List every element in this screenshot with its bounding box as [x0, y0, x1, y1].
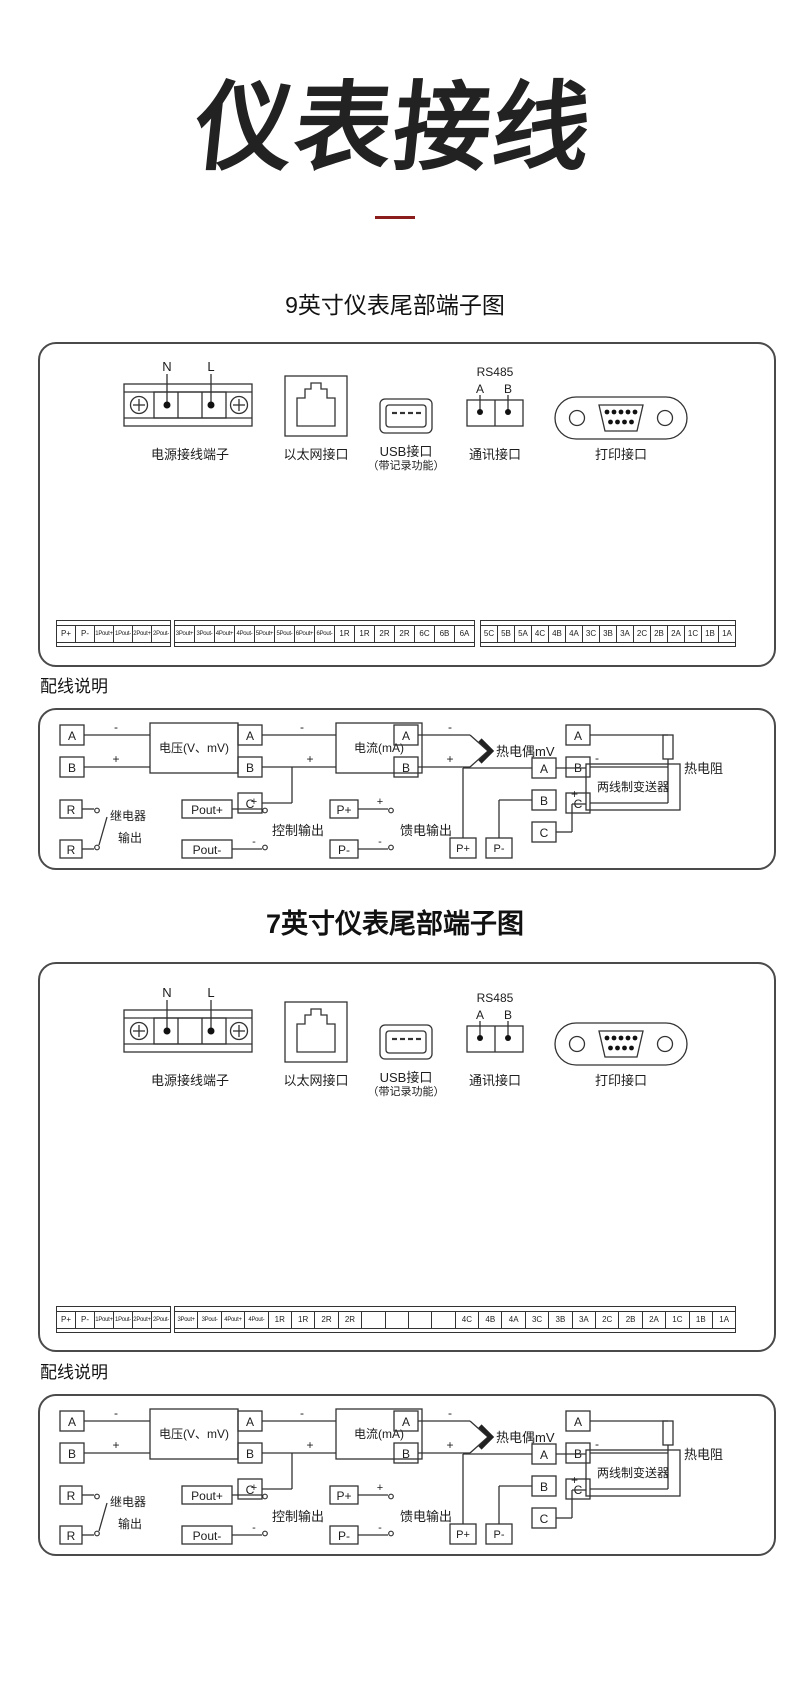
terminal-strip-group: 3Pout+3Pout-4Pout+4Pout-5Pout+5Pout-6Pou… [174, 620, 475, 647]
terminal-a: A [540, 762, 548, 776]
wiring-heading: 配线说明 [40, 672, 108, 697]
wiring-relay-diagram: R R 继电器 输出 [58, 796, 178, 866]
terminal-a: A [402, 729, 410, 743]
pin-l-label: L [207, 986, 214, 1000]
pos-sign: + [251, 796, 257, 808]
terminal-cell: 6B [434, 626, 454, 642]
terminal-cell: 2Pout- [151, 626, 170, 642]
terminal-cell: 2C [595, 1312, 618, 1328]
terminal-cell: 1Pout- [113, 626, 132, 642]
terminal-cell: 1R [291, 1312, 314, 1328]
pin-l-label: L [207, 360, 214, 374]
terminal-cell [385, 1312, 408, 1328]
terminal-cell: 2Pout+ [132, 626, 151, 642]
wiring-transmitter-diagram: A B C P+ P- 两线制变送器 - + [440, 752, 685, 864]
terminal-p-minus: P- [494, 843, 505, 855]
terminal-cell [361, 1312, 384, 1328]
terminal-r2: R [67, 1529, 76, 1543]
neg-sign: - [378, 1522, 382, 1534]
terminal-cell: 2B [618, 1312, 641, 1328]
section-heading-7inch: 7英寸仪表尾部端子图 [0, 902, 790, 941]
terminal-cell: 2R [374, 626, 394, 642]
voltage-label: 电压(V、mV) [159, 1427, 229, 1441]
terminal-cell: 1Pout- [113, 1312, 132, 1328]
power-terminal-label: 电源接线端子 [122, 1070, 258, 1089]
terminal-b: B [540, 1480, 548, 1494]
terminal-a: A [68, 1415, 76, 1429]
power-terminal-icon: N L [122, 360, 256, 430]
neg-sign: - [114, 720, 118, 734]
document-page: 仪表接线 9英寸仪表尾部端子图 N L [0, 0, 790, 1687]
terminal-cell: 1R [354, 626, 374, 642]
terminal-cell: 3Pout+ [175, 1312, 197, 1328]
rs485-pin-a: A [476, 382, 484, 396]
terminal-cell: 2R [394, 626, 414, 642]
terminal-a: A [402, 1415, 410, 1429]
rs485-label: 通讯接口 [445, 1070, 545, 1089]
terminal-cell: 2A [667, 626, 684, 642]
terminal-c: C [540, 1512, 549, 1526]
terminal-strip-group: P+P-1Pout+1Pout-2Pout+2Pout- [56, 620, 171, 647]
neg-sign: - [595, 752, 599, 765]
neg-sign: - [378, 836, 382, 848]
transmitter-label: 两线制变送器 [597, 779, 669, 794]
terminal-cell: 3B [548, 1312, 571, 1328]
terminal-b: B [402, 1447, 410, 1461]
terminal-a: A [574, 1415, 582, 1429]
terminal-cell: 6Pout+ [294, 626, 314, 642]
pos-sign: + [571, 787, 578, 801]
pos-sign: + [377, 796, 383, 808]
terminal-cell: 1Pout+ [94, 626, 113, 642]
terminal-cell: 6A [454, 626, 474, 642]
terminal-b: B [68, 761, 76, 775]
terminal-cell: 3Pout- [197, 1312, 220, 1328]
printer-label: 打印接口 [554, 444, 688, 463]
wiring-panel-9inch: A B - + 电压(V、mV) A B C - + 电流(mA) A B [38, 708, 776, 870]
terminal-cell: 2A [642, 1312, 665, 1328]
ethernet-port-icon [284, 374, 348, 438]
terminal-pout-minus: Pout- [193, 1529, 222, 1543]
neg-sign: - [300, 720, 304, 734]
terminal-cell: 2R [314, 1312, 337, 1328]
rs485-pin-a: A [476, 1008, 484, 1022]
wiring-transmitter-diagram: A B C P+ P- 两线制变送器 - + [440, 1438, 685, 1550]
wiring-panel-7inch: A B - + 电压(V、mV) A B C - + 电流(mA) A B - [38, 1394, 776, 1556]
pos-sign: + [306, 752, 313, 766]
terminal-strip-group: 3Pout+3Pout-4Pout+4Pout-1R1R2R2R4C4B4A3C… [174, 1306, 736, 1333]
terminal-cell: P+ [57, 1312, 75, 1328]
control-label: 控制输出 [272, 1509, 324, 1524]
terminal-cell: 2Pout+ [132, 1312, 151, 1328]
connector-cluster: N L [40, 352, 774, 482]
terminal-cell: 3Pout- [194, 626, 214, 642]
usb-port-icon [379, 1024, 433, 1060]
terminal-cell: 3C [525, 1312, 548, 1328]
terminal-a: A [68, 729, 76, 743]
terminal-cell: 3Pout+ [175, 626, 194, 642]
terminal-cell: 2Pout- [151, 1312, 170, 1328]
relay-label-2: 输出 [118, 1516, 142, 1531]
terminal-cell [408, 1312, 431, 1328]
terminal-cell: 4B [548, 626, 565, 642]
rs485-pin-b: B [504, 382, 512, 396]
terminal-cell: P+ [57, 626, 75, 642]
terminal-b: B [246, 761, 254, 775]
terminal-cell: 1C [665, 1312, 688, 1328]
rs485-title: RS485 [477, 365, 514, 379]
pos-sign: + [251, 1482, 257, 1494]
terminal-p-plus: P+ [336, 1489, 351, 1503]
terminal-cell [431, 1312, 454, 1328]
terminal-cell: 1Pout+ [94, 1312, 113, 1328]
relay-label-2: 输出 [118, 830, 142, 845]
terminal-cell: 4Pout- [234, 626, 254, 642]
terminal-cell: P- [75, 626, 94, 642]
terminal-cell: 1A [712, 1312, 735, 1328]
pos-sign: + [112, 1438, 119, 1452]
terminal-cell: 4Pout+ [214, 626, 234, 642]
neg-sign: - [252, 1522, 256, 1534]
neg-sign: - [595, 1438, 599, 1451]
terminal-cell: 3B [599, 626, 616, 642]
wiring-control-diagram: Pout+ Pout- + - 控制输出 [180, 796, 330, 866]
control-label: 控制输出 [272, 823, 324, 838]
pin-n-label: N [162, 360, 171, 374]
terminal-p-plus: P+ [456, 843, 470, 855]
pin-n-label: N [162, 986, 171, 1000]
usb-sublabel: （带记录功能） [356, 1083, 456, 1099]
terminal-r1: R [67, 803, 76, 817]
power-terminal-label: 电源接线端子 [122, 444, 258, 463]
terminal-cell: 6Pout- [314, 626, 334, 642]
wiring-voltage-diagram: A B - + 电压(V、mV) [58, 1406, 243, 1470]
relay-label-1: 继电器 [110, 809, 146, 823]
terminal-a: A [540, 1448, 548, 1462]
neg-sign: - [114, 1406, 118, 1420]
terminal-cell: 1R [268, 1312, 291, 1328]
pos-sign: + [571, 1473, 578, 1487]
terminal-p-plus: P+ [336, 803, 351, 817]
rs485-terminal-icon: RS485 A B [465, 364, 525, 430]
terminal-cell: 1R [334, 626, 354, 642]
terminal-b: B [540, 794, 548, 808]
terminal-cell: 1B [689, 1312, 712, 1328]
terminal-cell: 3C [582, 626, 599, 642]
pos-sign: + [377, 1482, 383, 1494]
terminal-a: A [574, 729, 582, 743]
terminal-cell: 4Pout- [244, 1312, 267, 1328]
rtd-label: 热电阻 [684, 1447, 723, 1462]
terminal-cell: 2R [338, 1312, 361, 1328]
terminal-cell: 1A [718, 626, 735, 642]
terminal-p-minus: P- [494, 1529, 505, 1541]
terminal-strip-group: 5C5B5A4C4B4A3C3B3A2C2B2A1C1B1A [480, 620, 736, 647]
section-heading-9inch: 9英寸仪表尾部端子图 [0, 286, 790, 320]
terminal-pout-minus: Pout- [193, 843, 222, 857]
neg-sign: - [448, 1406, 452, 1420]
ethernet-label: 以太网接口 [266, 1070, 366, 1089]
wiring-relay-diagram: R R 继电器 输出 [58, 1482, 178, 1552]
terminal-pout-plus: Pout+ [191, 803, 223, 817]
terminal-panel-9inch: N L [38, 342, 776, 667]
terminal-cell: 4B [478, 1312, 501, 1328]
transmitter-label: 两线制变送器 [597, 1465, 669, 1480]
printer-label: 打印接口 [554, 1070, 688, 1089]
relay-label-1: 继电器 [110, 1495, 146, 1509]
ethernet-label: 以太网接口 [266, 444, 366, 463]
terminal-cell: 4C [455, 1312, 478, 1328]
usb-port-icon [379, 398, 433, 434]
wiring-heading: 配线说明 [40, 1358, 108, 1383]
terminal-cell: 4A [501, 1312, 524, 1328]
terminal-cell: 2B [650, 626, 667, 642]
terminal-strip-group: P+P-1Pout+1Pout-2Pout+2Pout- [56, 1306, 171, 1333]
terminal-cell: 1B [701, 626, 718, 642]
pos-sign: + [112, 752, 119, 766]
terminal-b: B [68, 1447, 76, 1461]
terminal-panel-7inch: N L [38, 962, 776, 1352]
ethernet-port-icon [284, 1000, 348, 1064]
terminal-p-minus: P- [338, 1529, 350, 1543]
page-title: 仪表接线 [0, 48, 790, 189]
wiring-voltage-diagram: A B - + 电压(V、mV) [58, 720, 243, 784]
terminal-cell: 5Pout+ [254, 626, 274, 642]
usb-sublabel: （带记录功能） [356, 457, 456, 473]
terminal-cell: 2C [633, 626, 650, 642]
terminal-cell: 5A [514, 626, 531, 642]
terminal-r2: R [67, 843, 76, 857]
printer-port-icon [554, 394, 688, 442]
terminal-cell: 4Pout+ [221, 1312, 244, 1328]
terminal-b: B [246, 1447, 254, 1461]
terminal-cell: 4A [565, 626, 582, 642]
terminal-a: A [246, 1415, 254, 1429]
neg-sign: - [252, 836, 256, 848]
red-divider [375, 216, 415, 219]
connector-cluster: N L [40, 978, 774, 1108]
terminal-pout-plus: Pout+ [191, 1489, 223, 1503]
power-terminal-icon: N L [122, 986, 256, 1056]
printer-port-icon [554, 1020, 688, 1068]
terminal-cell: 6C [414, 626, 434, 642]
terminal-cell: 5C [481, 626, 497, 642]
terminal-p-plus: P+ [456, 1529, 470, 1541]
voltage-label: 电压(V、mV) [159, 741, 229, 755]
rs485-label: 通讯接口 [445, 444, 545, 463]
terminal-cell: 5Pout- [274, 626, 294, 642]
terminal-r1: R [67, 1489, 76, 1503]
terminal-cell: 4C [531, 626, 548, 642]
terminal-cell: 3A [572, 1312, 595, 1328]
rtd-label: 热电阻 [684, 761, 723, 776]
wiring-control-diagram: Pout+ Pout- + - 控制输出 [180, 1482, 330, 1552]
terminal-cell: 3A [616, 626, 633, 642]
terminal-cell: 5B [497, 626, 514, 642]
pos-sign: + [306, 1438, 313, 1452]
terminal-b: B [402, 761, 410, 775]
rs485-terminal-icon: RS485 A B [465, 990, 525, 1056]
rs485-pin-b: B [504, 1008, 512, 1022]
neg-sign: - [448, 720, 452, 734]
terminal-cell: P- [75, 1312, 94, 1328]
rs485-title: RS485 [477, 991, 514, 1005]
terminal-a: A [246, 729, 254, 743]
terminal-p-minus: P- [338, 843, 350, 857]
terminal-cell: 1C [684, 626, 701, 642]
neg-sign: - [300, 1406, 304, 1420]
terminal-c: C [540, 826, 549, 840]
